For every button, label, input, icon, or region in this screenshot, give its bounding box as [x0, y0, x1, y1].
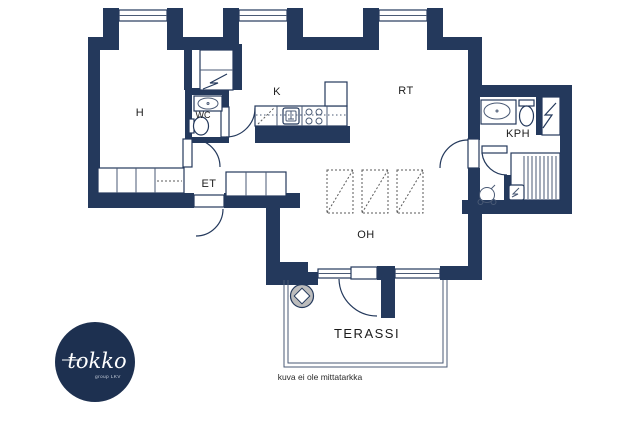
technical-closet — [200, 50, 233, 90]
sauna-door — [482, 146, 507, 175]
entrance-door — [194, 195, 224, 236]
window-bay-3 — [379, 10, 427, 21]
room-label-terassi: TERASSI — [334, 326, 400, 341]
logo-brand-text: tokko — [67, 349, 126, 373]
room-label-kph: KPH — [506, 128, 530, 140]
et-closet — [226, 172, 286, 196]
room-label-wc: WC — [196, 110, 211, 120]
room-label-k: K — [273, 86, 281, 98]
floor-plan-drawing: H WC K RT ET OH KPH TERASSI kuva ei ole … — [0, 0, 640, 427]
h-wardrobe — [98, 168, 184, 193]
terrace — [284, 280, 447, 367]
electrical-closet — [542, 97, 560, 135]
window-bay-2 — [239, 10, 287, 21]
kitchen-counter — [255, 82, 347, 126]
h-room-door — [183, 139, 220, 167]
sauna-stove-icon — [509, 185, 524, 200]
window-oh-left — [318, 269, 352, 278]
disclaimer-text: kuva ei ole mittatarkka — [278, 372, 363, 382]
window-oh-right — [395, 269, 440, 278]
kph-sink-icon — [481, 100, 516, 124]
room-label-h: H — [136, 107, 144, 119]
logo-tagline-text: group LKV — [95, 374, 121, 379]
kph-toilet-icon — [519, 100, 534, 126]
room-label-rt: RT — [398, 85, 413, 97]
room-label-oh: OH — [357, 229, 375, 241]
wc-door — [221, 107, 255, 137]
room-label-et: ET — [201, 178, 216, 190]
window-bay-1 — [119, 10, 167, 21]
floor-plan-page: H WC K RT ET OH KPH TERASSI kuva ei ole … — [0, 0, 640, 427]
sauna — [509, 153, 560, 200]
logo: tokko group LKV — [55, 322, 135, 402]
furniture-reservations — [327, 170, 423, 213]
grill-icon — [291, 285, 314, 308]
kph-door — [440, 139, 479, 168]
wc-sink-icon — [194, 96, 222, 111]
